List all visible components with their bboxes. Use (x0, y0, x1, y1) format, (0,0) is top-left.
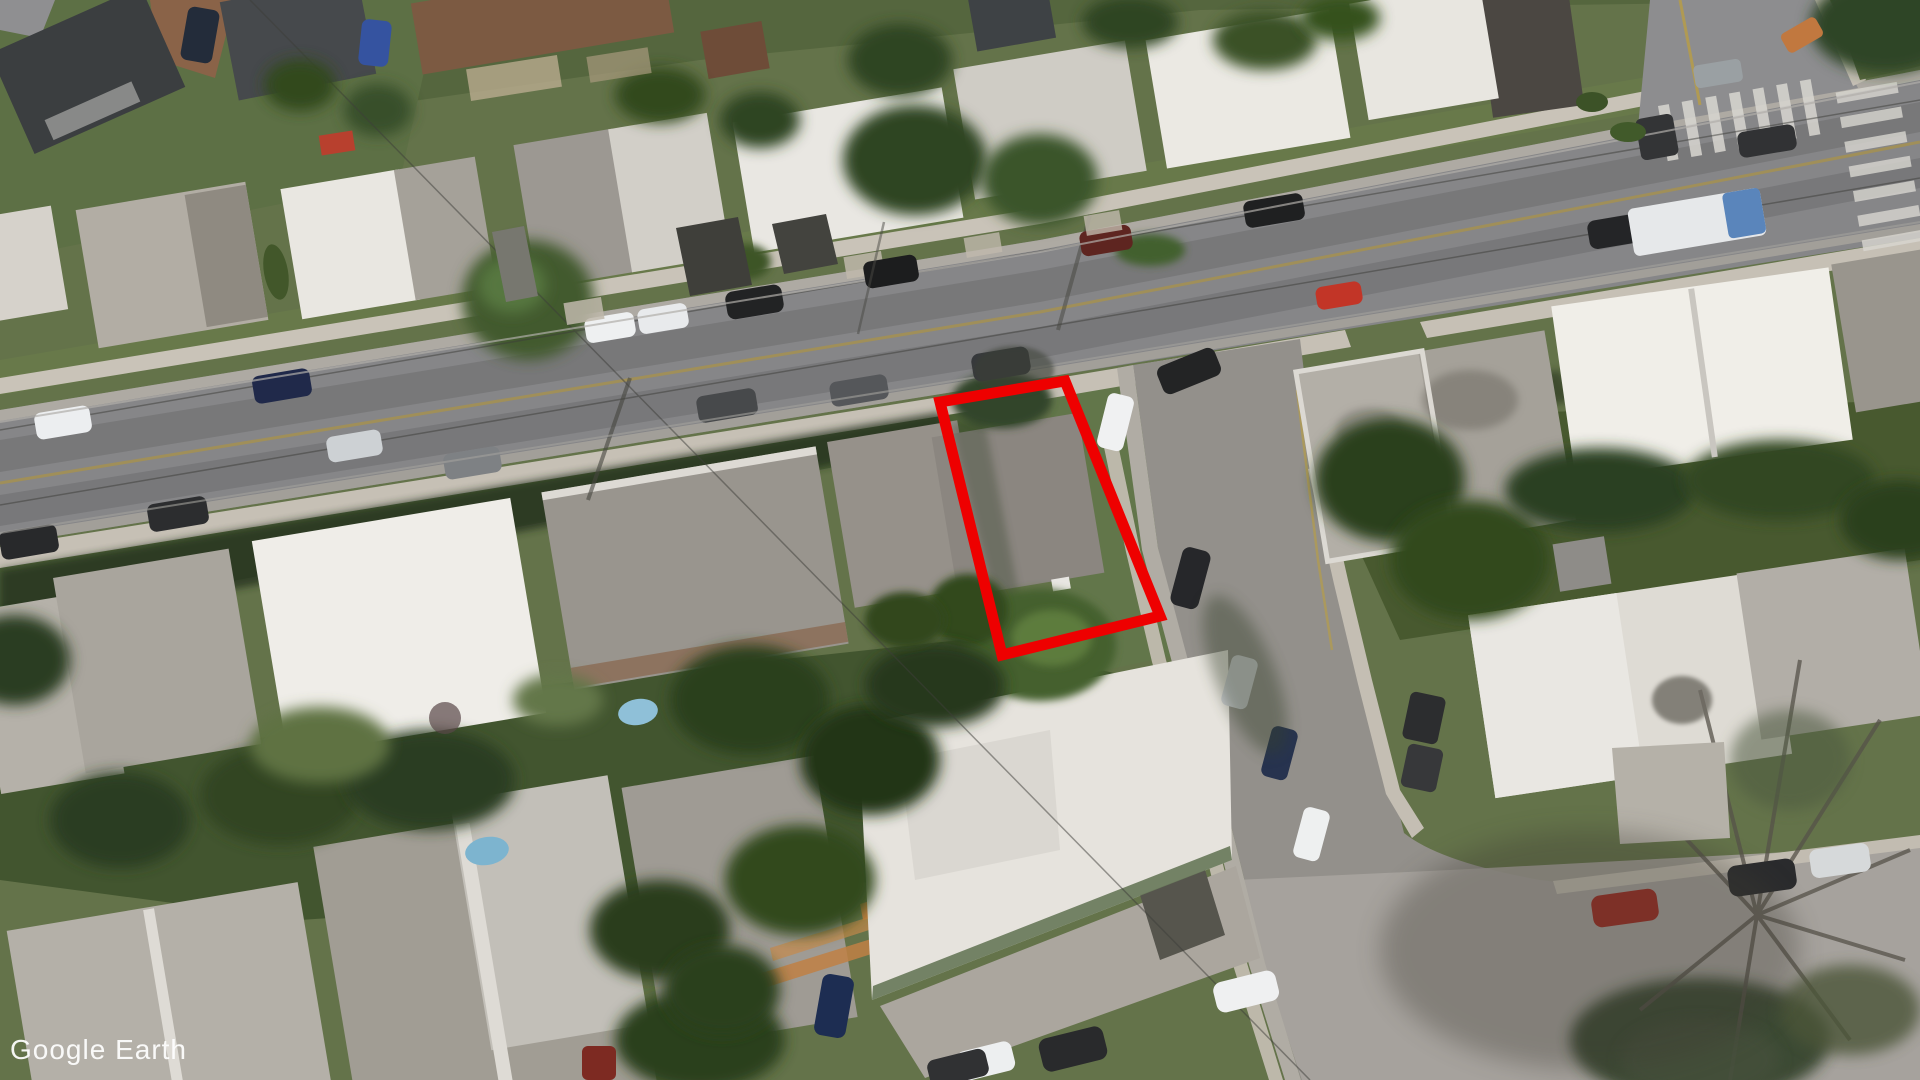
svg-text:Google Earth: Google Earth (10, 1034, 187, 1065)
